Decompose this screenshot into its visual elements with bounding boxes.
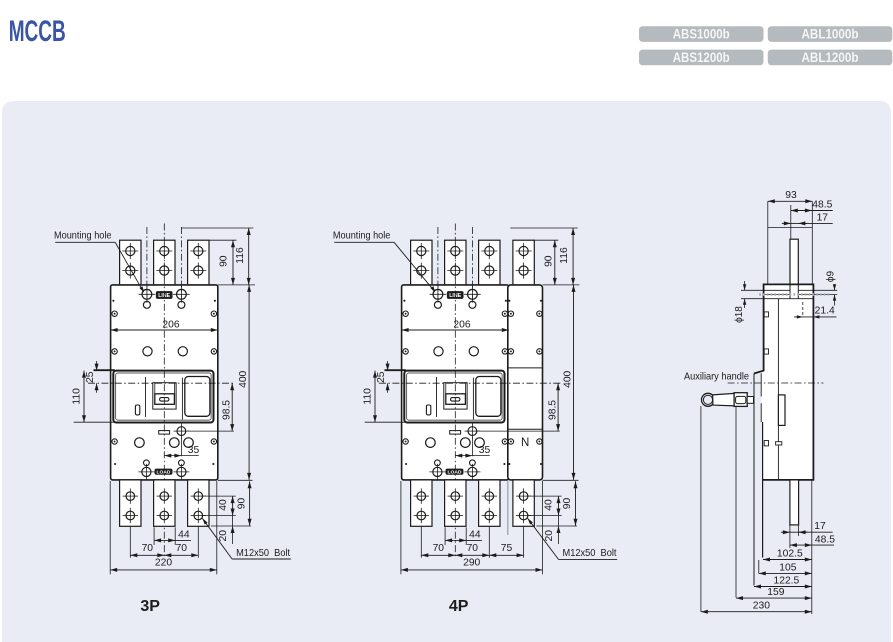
svg-text:ϕ18: ϕ18 <box>734 306 745 323</box>
svg-text:44: 44 <box>469 530 481 541</box>
svg-text:ABL1200b: ABL1200b <box>802 50 859 65</box>
svg-text:400: 400 <box>563 370 574 387</box>
svg-text:40: 40 <box>544 499 555 511</box>
svg-text:98.5: 98.5 <box>548 400 559 420</box>
svg-text:290: 290 <box>463 557 480 568</box>
svg-text:MCCB: MCCB <box>9 15 66 48</box>
svg-text:105: 105 <box>779 562 796 573</box>
svg-text:3P: 3P <box>140 598 160 615</box>
svg-text:20: 20 <box>218 530 229 542</box>
svg-text:159: 159 <box>767 587 784 598</box>
svg-text:M12x50 Bolt: M12x50 Bolt <box>563 548 617 559</box>
svg-text:220: 220 <box>155 557 172 568</box>
svg-text:110: 110 <box>363 388 374 405</box>
svg-text:70: 70 <box>433 543 445 554</box>
svg-text:102.5: 102.5 <box>777 549 803 560</box>
svg-text:ABS1200b: ABS1200b <box>673 50 730 65</box>
svg-text:75: 75 <box>501 543 513 554</box>
svg-text:206: 206 <box>453 319 470 330</box>
svg-text:70: 70 <box>176 543 188 554</box>
svg-text:90: 90 <box>236 498 247 510</box>
svg-text:70: 70 <box>467 543 479 554</box>
svg-text:21.4: 21.4 <box>815 306 835 317</box>
svg-text:44: 44 <box>178 530 190 541</box>
svg-text:90: 90 <box>544 255 555 267</box>
svg-text:17: 17 <box>817 212 829 223</box>
svg-text:35: 35 <box>188 445 200 456</box>
svg-text:110: 110 <box>72 388 83 405</box>
svg-text:17: 17 <box>814 521 826 532</box>
svg-text:20: 20 <box>544 530 555 542</box>
svg-text:4P: 4P <box>449 598 469 615</box>
svg-text:Mounting hole: Mounting hole <box>54 229 112 241</box>
svg-text:40: 40 <box>218 499 229 511</box>
svg-text:206: 206 <box>162 319 179 330</box>
svg-text:48.5: 48.5 <box>815 534 835 545</box>
svg-text:400: 400 <box>238 370 249 387</box>
svg-text:LOAD: LOAD <box>157 470 172 476</box>
svg-text:70: 70 <box>142 543 154 554</box>
svg-text:98.5: 98.5 <box>222 400 233 420</box>
svg-text:25: 25 <box>376 371 387 383</box>
svg-text:116: 116 <box>235 247 246 264</box>
svg-text:116: 116 <box>559 247 570 264</box>
svg-text:90: 90 <box>562 498 573 510</box>
svg-text:230: 230 <box>753 601 770 612</box>
svg-text:M12x50 Bolt: M12x50 Bolt <box>236 548 290 559</box>
svg-text:ABS1000b: ABS1000b <box>673 26 730 41</box>
svg-text:LOAD: LOAD <box>448 470 463 476</box>
svg-text:122.5: 122.5 <box>774 576 800 587</box>
svg-text:Mounting hole: Mounting hole <box>333 229 391 241</box>
svg-text:ABL1000b: ABL1000b <box>802 26 859 41</box>
svg-text:Auxiliary handle: Auxiliary handle <box>684 371 749 383</box>
svg-text:90: 90 <box>219 255 230 267</box>
svg-text:93: 93 <box>785 190 797 201</box>
svg-text:48.5: 48.5 <box>812 200 832 211</box>
svg-text:35: 35 <box>479 445 491 456</box>
svg-text:25: 25 <box>85 371 96 383</box>
svg-text:ϕ9: ϕ9 <box>826 270 837 282</box>
svg-text:N: N <box>521 437 529 449</box>
